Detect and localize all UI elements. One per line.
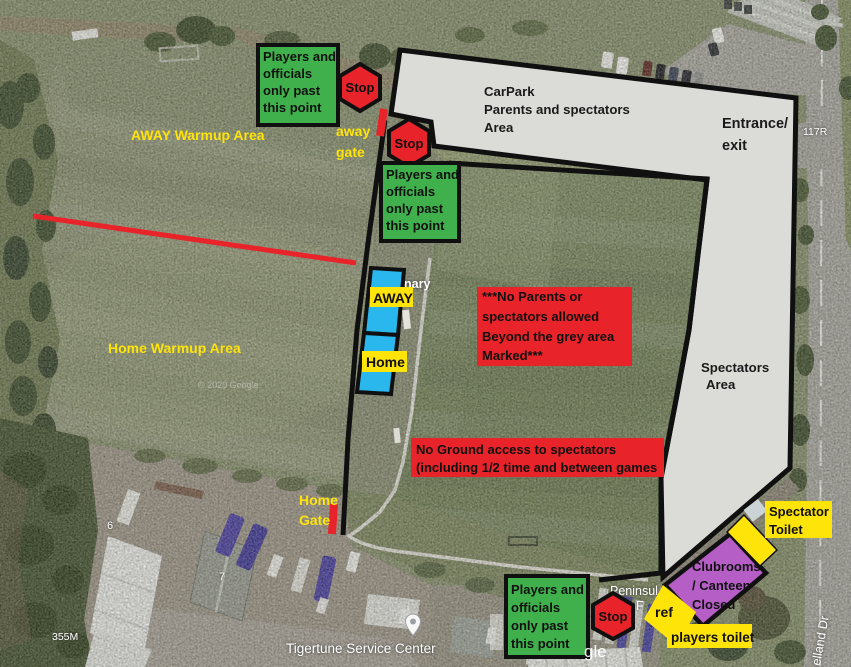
svg-text:Parents and spectators: Parents and spectators (484, 102, 630, 117)
svg-text:gle: gle (584, 642, 607, 661)
svg-text:Beyond the grey area: Beyond the grey area (482, 329, 615, 344)
svg-text:spectators allowed: spectators allowed (482, 309, 599, 324)
svg-text:Gate: Gate (299, 512, 330, 528)
svg-text:Marked***: Marked*** (482, 348, 544, 363)
svg-text:only past: only past (386, 201, 444, 216)
svg-text:CarPark: CarPark (484, 84, 535, 99)
svg-text:only past: only past (263, 83, 321, 98)
svg-text:Closed: Closed (692, 597, 735, 612)
svg-text:Spectator: Spectator (769, 504, 829, 519)
svg-text:117R: 117R (803, 126, 828, 138)
svg-text:Players and: Players and (511, 582, 584, 597)
svg-text:exit: exit (722, 138, 747, 154)
svg-text:Area: Area (484, 120, 514, 135)
svg-text:F: F (636, 599, 644, 613)
svg-text:officials: officials (263, 66, 312, 81)
svg-text:Tigertune Service Center: Tigertune Service Center (286, 641, 436, 656)
svg-text:Entrance/: Entrance/ (722, 116, 788, 132)
svg-text:gate: gate (336, 144, 365, 160)
svg-text:AWAY Warmup Area: AWAY Warmup Area (131, 127, 265, 143)
svg-text:ref: ref (655, 604, 673, 620)
svg-text:Home Warmup Area: Home Warmup Area (108, 340, 241, 356)
svg-text:355M: 355M (52, 631, 78, 643)
svg-text:Toilet: Toilet (769, 522, 803, 537)
svg-text:Clubrooms: Clubrooms (692, 559, 761, 574)
svg-text:Players and: Players and (386, 167, 459, 182)
svg-text:this point: this point (263, 100, 322, 115)
svg-text:away: away (336, 123, 370, 139)
svg-text:Players and: Players and (263, 49, 336, 64)
svg-text:Home: Home (299, 492, 338, 508)
svg-text:© 2020 Google: © 2020 Google (198, 380, 259, 390)
svg-text:Stop: Stop (395, 136, 424, 151)
svg-text:Home: Home (366, 354, 405, 370)
svg-text:***No Parents or: ***No Parents or (482, 289, 582, 304)
svg-text:officials: officials (511, 600, 560, 615)
svg-text:Stop: Stop (599, 609, 628, 624)
svg-text:Spectators: Spectators (701, 360, 769, 375)
svg-text:No Ground access to spectators: No Ground access to spectators (416, 442, 616, 457)
svg-text:only past: only past (511, 618, 569, 633)
svg-text:7: 7 (219, 571, 225, 583)
svg-text:players toilet: players toilet (671, 630, 755, 645)
svg-text:Stop: Stop (346, 80, 375, 95)
svg-text:AWAY: AWAY (373, 290, 414, 306)
svg-text:this point: this point (386, 218, 445, 233)
svg-text:officials: officials (386, 184, 435, 199)
svg-text:this point: this point (511, 636, 570, 651)
svg-text:6: 6 (107, 520, 113, 532)
svg-text:Area: Area (706, 377, 736, 392)
svg-text:/ Canteen: / Canteen (692, 578, 751, 593)
svg-text:(including 1/2 time and betwee: (including 1/2 time and between games (416, 460, 657, 475)
